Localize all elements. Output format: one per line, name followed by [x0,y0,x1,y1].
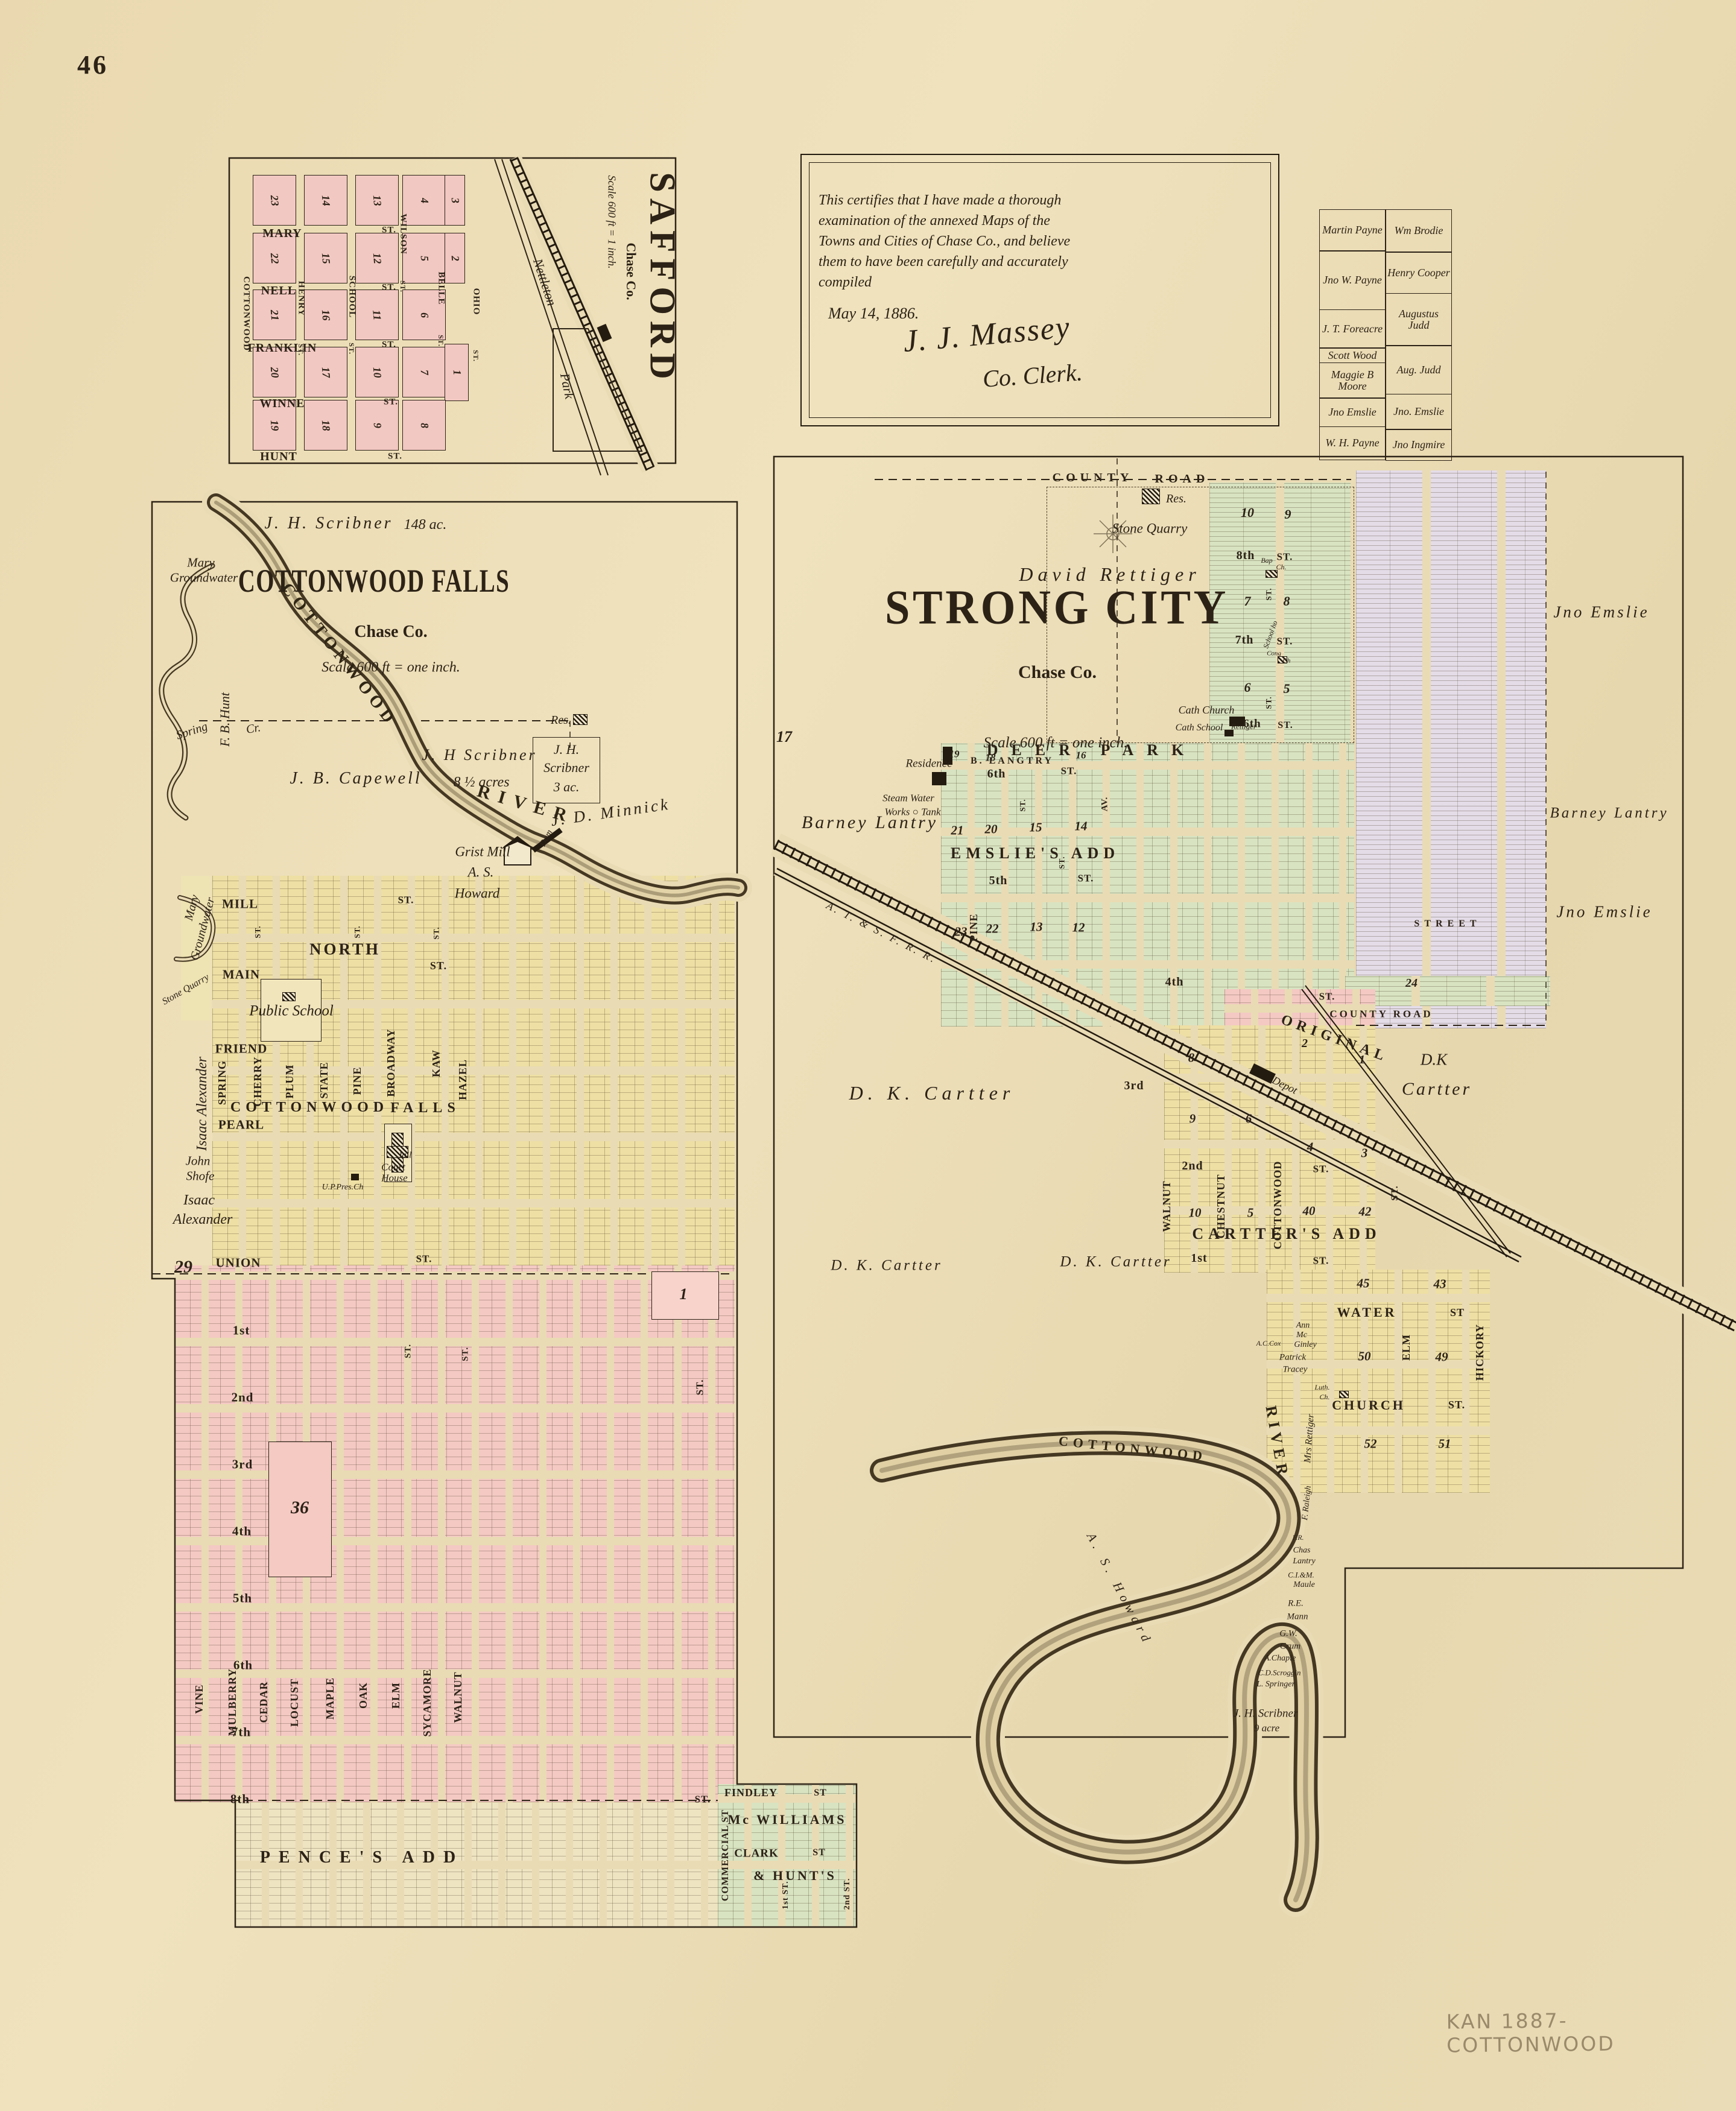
cottonwood-falls-label: MILL [222,898,258,911]
strong-city-label: ST. [1319,992,1335,1002]
cottonwood-falls-label: J. H. Scribner [264,515,393,532]
strong-city-label: A.Chaple [1264,1654,1296,1663]
strong-city-label: R.E. [1288,1600,1304,1609]
cottonwood-falls-label: A. S. [468,866,494,879]
cottonwood-falls-label: SPRING [217,1060,227,1105]
strong-city-label: F. Raleigh [1301,1486,1313,1521]
safford-label: HUNT [260,451,297,463]
cottonwood-falls-label: ST. [416,1254,432,1264]
strong-city-label: Steam Water [882,793,934,803]
strong-city-label: Crum [1280,1642,1300,1651]
strong-city-label: Mrs Rettiger [1303,1414,1316,1463]
cottonwood-falls-label: ST. [254,925,262,938]
cottonwood-falls-label: ST. [398,895,414,905]
cottonwood-falls-label: John [186,1155,211,1168]
cottonwood-falls-label: 4th [232,1525,252,1538]
strong-city-label: 10 [1241,506,1254,519]
strong-city-label: 8 [1188,1052,1195,1065]
safford-label: SCHOOL [347,276,356,318]
cottonwood-falls-label: NORTH [309,942,381,958]
strong-city-label: ST. [1265,696,1273,709]
strong-city-label: Barney Lantry [1550,806,1668,821]
strong-city-label: 9 [1190,1113,1196,1125]
safford-label: HENRY [297,281,306,317]
strong-city-label: Mc [1296,1331,1307,1340]
strong-city-label: 17 [776,729,792,745]
cottonwood-falls-label: Howard [455,887,500,900]
strong-city-label: Jno Emslie [1553,604,1649,621]
cottonwood-falls-label: 2nd ST. [843,1878,852,1910]
cottonwood-falls-label: Court [381,1162,405,1173]
safford-label: WINNE [259,397,305,410]
safford-label: OHIO [472,288,481,315]
safford-label: ST. [297,344,305,356]
safford-label: Park [558,372,576,400]
cottonwood-falls-label: ST [813,1848,826,1858]
strong-city-label: ORIGINAL [1279,1013,1391,1065]
safford-label: ST. [388,452,402,461]
strong-city-label: PINE [968,913,979,942]
safford-label: ST. [382,226,396,235]
cottonwood-falls-label: ST [814,1788,827,1798]
cottonwood-falls-label: Scribner [543,761,589,774]
cottonwood-falls-label: CHERRY [252,1056,263,1106]
safford-label: BELLE [437,271,446,305]
strong-city-label: ST. [1313,1164,1329,1174]
cottonwood-falls-label: FINDLEY [724,1787,778,1798]
cottonwood-falls-label: BROADWAY [385,1028,396,1097]
strong-city-label: 6th [987,768,1006,780]
strong-city-label: 13 [1030,921,1043,934]
cottonwood-falls-label: U.P.Pres.Ch [322,1183,364,1192]
safford-label: ST. [348,343,355,355]
cottonwood-falls-label: 1 [680,1287,688,1302]
cottonwood-falls-label: Isaac [183,1193,215,1207]
strong-city-label: L. Springer [1256,1680,1295,1689]
safford-label: ST. [399,280,407,293]
cottonwood-falls-label: Groundwater [170,572,238,584]
strong-city-label: Depot [1270,1074,1299,1095]
strong-city-label: 8 [1284,595,1290,608]
cottonwood-falls-label: SYCAMORE [422,1668,432,1736]
strong-city-label: ST. [1278,721,1293,730]
strong-city-label: Lantry [1293,1557,1315,1566]
strong-city-label: ST. [1277,552,1293,562]
strong-city-label: 43 [1434,1278,1446,1291]
strong-city-label: 15 [1030,821,1042,834]
cottonwood-falls-label: ST. [461,1347,470,1361]
strong-city-label: Residence [905,758,952,770]
strong-city-label: 1st [1191,1252,1207,1264]
cottonwood-falls-label: ST. [430,960,447,971]
strong-city-label: Ann [1296,1321,1310,1330]
strong-city-label: Cath School [1176,723,1223,733]
cottonwood-falls-label: 148 ac. [404,517,447,532]
strong-city-label: 4th [1165,976,1184,988]
cottonwood-falls-label: UNION [215,1257,261,1270]
safford-label: ST. [472,350,480,362]
strong-city-label: 9 acre [1254,1723,1279,1733]
cottonwood-falls-label: F. B. Hunt [218,692,232,747]
strong-city-label: 2 [1302,1037,1308,1049]
cottonwood-falls-label: 8th [230,1793,250,1806]
strong-city-label: 20 [985,823,998,836]
strong-city-label: D. K. Cartter [849,1083,1015,1103]
strong-city-label: RIVER [1262,1405,1291,1481]
cottonwood-falls-label: Public School [249,1004,334,1019]
strong-city-label: COTTONWOOD [1058,1434,1208,1463]
strong-city-label: 5th [989,875,1008,887]
strong-city-label: Jno Emslie [1556,904,1652,920]
safford-label: MARY [262,227,302,239]
cottonwood-falls-label: KAW [431,1049,442,1077]
cottonwood-falls-label: ST. [432,926,440,939]
strong-city-label: 42 [1359,1206,1372,1218]
strong-city-label: ST. [1313,1256,1329,1266]
cottonwood-falls-label: ST. [695,1794,711,1805]
cottonwood-falls-label: STATE [318,1062,329,1098]
cottonwood-falls-label: PENCE'S ADD [260,1849,464,1866]
cottonwood-falls-label: FALLS [390,1101,460,1115]
cottonwood-falls-label: ST. [404,1344,413,1358]
strong-city-label: 18 [986,753,996,763]
cottonwood-falls-label: J. H Scribner [422,747,537,763]
safford-label: ST. [384,398,398,407]
cottonwood-falls-label: ST. [695,1379,705,1396]
strong-city-label: 16 [1076,750,1086,761]
cottonwood-falls-label: Res. [551,714,571,726]
safford-label: COTTONWOOD [242,276,251,351]
strong-city-label: 51 [1439,1438,1451,1451]
cottonwood-falls-label: Grist Mill [455,845,510,859]
safford-label: FRANKLIN [248,342,317,354]
cottonwood-falls-label: 8 ½ acres [453,775,509,790]
strong-city-label: B. LANGTRY [971,756,1054,766]
strong-city-label: C.D.Scroggin [1258,1669,1300,1677]
strong-city-label: ROAD [1155,473,1210,485]
cottonwood-falls-label: CEDAR [258,1681,269,1723]
strong-city-label: 49 [1436,1351,1448,1364]
cottonwood-falls-label: MULBERRY [227,1668,238,1736]
cottonwood-falls-label: COTTONWOOD [278,580,400,730]
strong-city-label: 6th [1243,718,1261,730]
strong-city-label: A.C.Cox [1256,1340,1281,1347]
strong-city-label: 9 [1285,508,1291,521]
cottonwood-falls-label: ELM [390,1682,401,1709]
cottonwood-falls-label: Shofe [186,1170,215,1183]
strong-city-label: ST. [1058,856,1066,869]
strong-city-label: ST. [1019,799,1027,811]
strong-city-label: ST. [1061,766,1077,776]
strong-city-label: F.R. [1292,1534,1304,1541]
cottonwood-falls-label: & HUNT'S [753,1869,837,1882]
strong-city-label: D. K. Cartter [831,1258,942,1273]
strong-city-label: COUNTY [1053,472,1134,484]
strong-city-label: 22 [986,923,999,935]
strong-city-label: 50 [1358,1350,1371,1363]
cottonwood-falls-label: VINE [194,1684,204,1714]
strong-city-label: 23 [955,926,968,938]
cottonwood-falls-label: J. B. Capewell [290,770,422,787]
strong-city-label: Maule [1293,1581,1315,1589]
cottonwood-falls-label: Mary [187,557,215,569]
safford-label: NELL [261,285,296,297]
strong-city-label: D. K. Cartter [1060,1255,1171,1270]
strong-city-label: ST. [1078,873,1094,884]
strong-city-label: ST. [1448,1399,1465,1410]
strong-city-label: ST [1450,1307,1465,1318]
strong-city-label: 3rd [1124,1080,1144,1092]
strong-city-label: Mann [1287,1613,1308,1622]
strong-city-label: Tracey [1283,1366,1308,1375]
strong-city-label: Cong [1267,651,1281,657]
cottonwood-falls-label: CLARK [734,1848,779,1859]
cottonwood-falls-label: Dam [539,829,555,849]
safford-label: WILSON [399,214,408,255]
strong-city-label: 45 [1357,1277,1370,1290]
cottonwood-falls-label: MAPLE [325,1677,335,1720]
strong-city-label: Res. [1166,493,1186,505]
strong-city-label: WATER [1337,1306,1396,1319]
cottonwood-falls-label: J. D. Minnick [550,796,671,829]
strong-city-label: 2nd [1182,1160,1203,1172]
cottonwood-falls-label: Isaac Alexander [195,1057,209,1151]
strong-city-label: 12 [1072,922,1085,934]
cottonwood-falls-label: 3rd [232,1458,253,1471]
cottonwood-falls-label: 1st ST. [782,1881,790,1909]
strong-city-label: 7 [1244,595,1251,608]
cottonwood-falls-label: 29 [174,1258,192,1276]
safford-label: ST. [382,341,396,350]
strong-city-label: STREET [1414,919,1481,929]
strong-city-label: Ch. [1276,563,1286,571]
strong-city-label: 5 [1247,1207,1254,1220]
strong-city-label: Stone Quarry [1112,522,1188,536]
cottonwood-falls-label: FRIEND [215,1043,268,1055]
strong-city-label: 52 [1364,1438,1377,1451]
strong-city-label: ELM [1401,1334,1411,1361]
strong-city-label: D.K [1421,1052,1447,1068]
strong-city-label: 4 [1307,1141,1314,1154]
strong-city-label: ST. [1265,587,1273,600]
strong-city-label: 14 [1075,820,1088,833]
cottonwood-falls-label: HAZEL [457,1059,468,1100]
cottonwood-falls-label: Stone Quarry [160,972,211,1007]
cottonwood-falls-label: LOCUST [289,1679,300,1727]
strong-city-label: J. H. Scribner [1234,1708,1298,1720]
strong-city-label: 21 [951,824,964,837]
safford-label: ST. [437,335,445,347]
atlas-page: 46 SAFFORD Chase Co. Scale 600 ft = 1 in… [0,0,1736,2111]
strong-city-label: Cartter [1402,1080,1472,1098]
cottonwood-falls-label: 3 ac. [554,780,580,794]
strong-city-label: ST. [1277,636,1293,647]
strong-city-label: C.I.&M. [1288,1571,1314,1579]
cottonwood-falls-label: 2nd [232,1391,254,1404]
cottonwood-falls-label: Cr. [245,721,261,736]
cottonwood-falls-label: PEARL [218,1119,264,1131]
strong-city-label: COTTONWOOD [1272,1161,1283,1250]
strong-city-label: Ch. [1319,1393,1329,1400]
strong-city-label: Ginley [1294,1341,1316,1349]
cottonwood-falls-label: 36 [291,1499,309,1517]
cottonwood-falls-label: Spring [175,720,209,742]
strong-city-label: CHURCH [1332,1399,1405,1412]
strong-city-label: Ch [1283,658,1291,665]
strong-city-label: Cath Church [1179,704,1235,715]
strong-city-label: AV. [1101,797,1110,812]
strong-city-label: 8th [1237,549,1255,562]
cottonwood-falls-label: 5th [233,1592,252,1605]
cottonwood-falls-label: Mc WILLIAMS [728,1813,847,1826]
cottonwood-falls-label: PINE [352,1066,363,1095]
map-labels-layer: MARYNELLFRANKLINWINNEHUNTST.ST.ST.ST.ST.… [0,0,1736,2111]
strong-city-label: Bap [1261,557,1272,564]
strong-city-label: Patrick [1279,1353,1306,1362]
cottonwood-falls-label: OAK [358,1682,369,1709]
safford-label: ST. [382,283,396,293]
strong-city-label: G.W. [1279,1630,1297,1639]
cottonwood-falls-label: 1st [233,1325,250,1337]
cottonwood-falls-label: Alexander [173,1212,233,1227]
strong-city-label: 10 [1189,1207,1202,1220]
strong-city-label: 24 [1405,977,1418,989]
strong-city-label: 1 [1359,1054,1365,1066]
strong-city-label: 3 [1361,1147,1368,1160]
strong-city-label: WALNUT [1161,1180,1172,1232]
strong-city-label: Luth. [1314,1384,1329,1391]
strong-city-label: 7th [1235,634,1254,646]
cottonwood-falls-label: ST. [353,925,361,938]
strong-city-label: HICKORY [1474,1324,1485,1381]
strong-city-label: Barney Lantry [802,814,938,832]
safford-label: Nettleton [531,257,559,308]
cottonwood-falls-label: PLUM [284,1065,295,1099]
strong-city-label: 6 [1246,1113,1252,1125]
strong-city-label: COUNTY ROAD [1329,1009,1433,1019]
strong-city-label: 40 [1303,1205,1316,1218]
strong-city-label: CHESTNUT [1215,1174,1226,1238]
strong-city-label: ST. [1390,1185,1400,1200]
cottonwood-falls-label: Jail [398,1151,412,1160]
strong-city-label: 6 [1244,681,1251,694]
strong-city-label: EMSLIE'S ADD [951,846,1120,861]
strong-city-label: 5 [1284,682,1290,695]
strong-city-label: A. T. & S. F. R. R. [825,900,939,965]
cottonwood-falls-label: MAIN [223,969,260,981]
cottonwood-falls-label: J. H. [554,743,579,756]
cottonwood-falls-label: House [381,1173,407,1183]
cottonwood-falls-label: WALNUT [452,1671,463,1723]
strong-city-label: A. S. Howard [1085,1531,1155,1648]
strong-city-label: Chas [1293,1546,1311,1555]
strong-city-label: David Rettiger [1019,565,1200,584]
